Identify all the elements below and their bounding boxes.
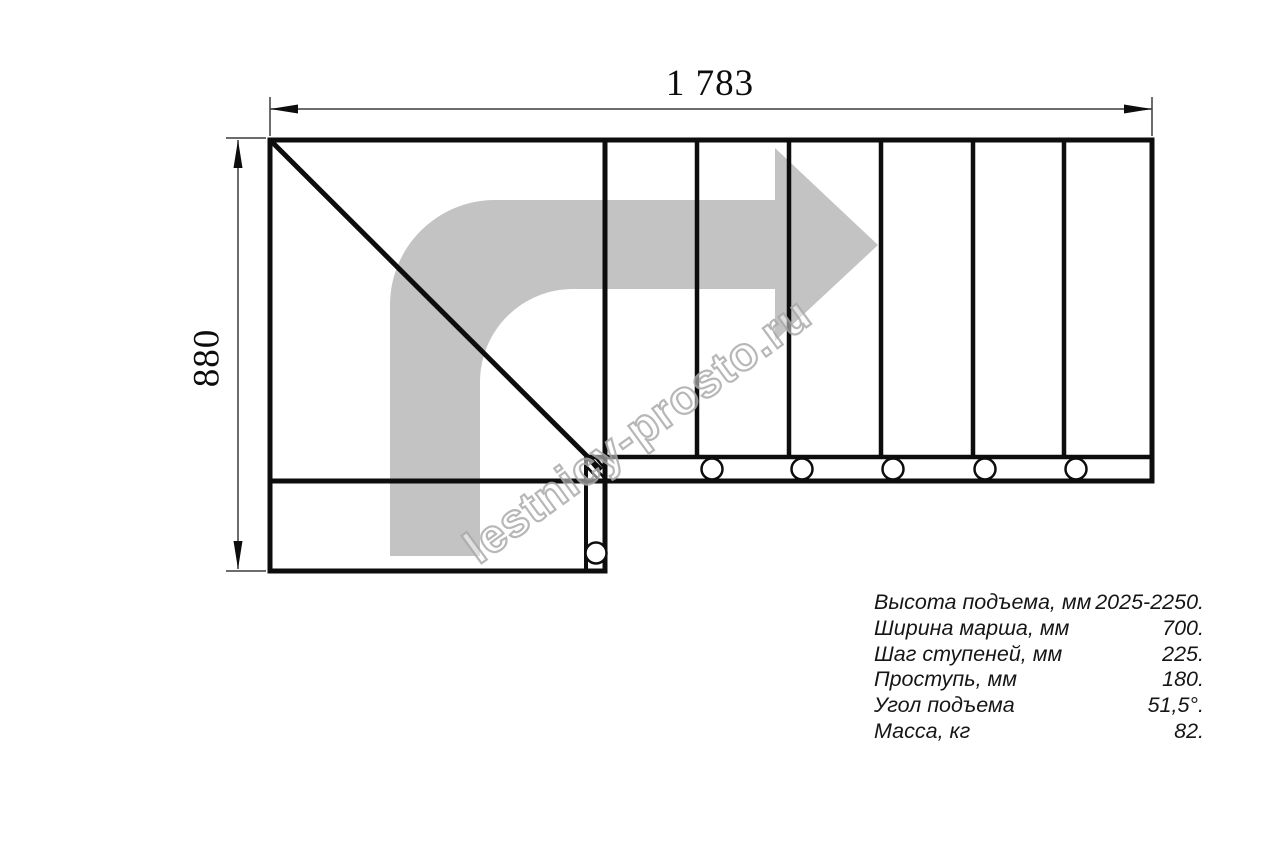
hatched-joint-marker-icon [586,457,605,481]
turn-right-arrow-icon [390,148,878,556]
bolt-circle-icon [702,459,723,480]
spec-label: Масса, кг [874,719,970,745]
dim-arrow-left-icon [270,105,298,114]
width-dimension-label: 1 783 [666,62,754,105]
spec-row-rise-height: Высота подъема, мм 2025-2250. [874,590,1204,616]
dimension-lines [226,97,1152,571]
dim-arrow-down-icon [234,541,243,569]
stair-plan-page: 1 783 880 lestnicy-prosto.ru Высота подъ… [0,0,1280,853]
dim-arrow-up-icon [234,140,243,168]
spec-label: Угол подъема [874,693,1015,719]
spec-value: 180. [1162,667,1204,693]
spec-value: 51,5°. [1148,693,1204,719]
dimension-arrowheads [234,105,1153,570]
spec-label: Ширина марша, мм [874,616,1069,642]
spec-label: Проступь, мм [874,667,1017,693]
bolt-circle-icon [586,543,607,564]
bolt-circle-icon [792,459,813,480]
spec-value: 225. [1162,642,1204,668]
spec-table: Высота подъема, мм 2025-2250. Ширина мар… [874,590,1204,745]
spec-value: 82. [1174,719,1204,745]
bolt-circle-icon [975,459,996,480]
spec-value: 2025-2250. [1095,590,1204,616]
spec-row-mass: Масса, кг 82. [874,719,1204,745]
height-dimension-label: 880 [186,329,229,388]
spec-label: Шаг ступеней, мм [874,642,1062,668]
fastener-circles [586,459,1087,564]
spec-row-climb-angle: Угол подъема 51,5°. [874,693,1204,719]
dim-arrow-right-icon [1124,105,1152,114]
spec-row-step-pitch: Шаг ступеней, мм 225. [874,642,1204,668]
spec-row-flight-width: Ширина марша, мм 700. [874,616,1204,642]
bolt-circle-icon [883,459,904,480]
spec-value: 700. [1162,616,1204,642]
bolt-circle-icon [1066,459,1087,480]
spec-label: Высота подъема, мм [874,590,1091,616]
spec-row-tread-depth: Проступь, мм 180. [874,667,1204,693]
